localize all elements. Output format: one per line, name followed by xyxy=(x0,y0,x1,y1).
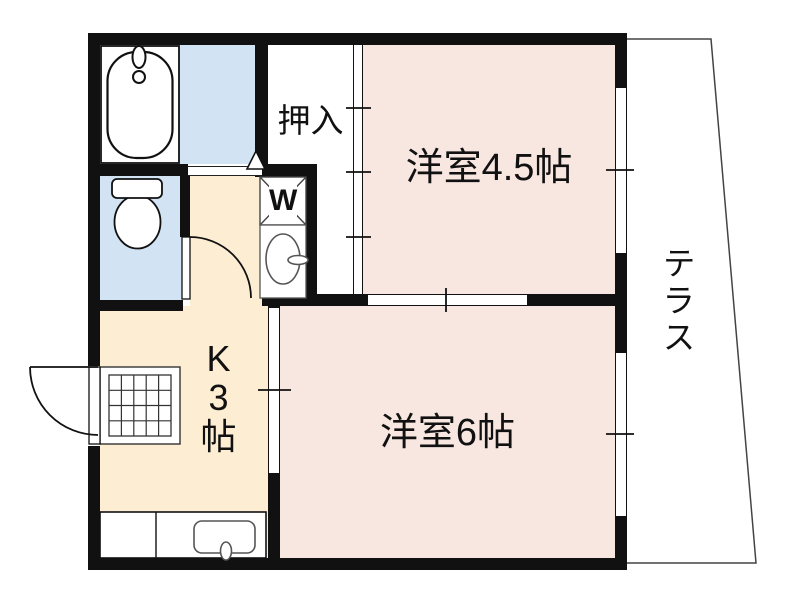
floor-plan: 洋室4.5帖 洋室6帖 押入 K 3 帖 テラス W xyxy=(0,0,800,612)
wall-top xyxy=(88,33,627,45)
kitchen-label-line2: 3 xyxy=(196,378,241,417)
closet-sliding-door xyxy=(353,45,363,294)
kitchen-label-line1: K xyxy=(196,339,241,378)
room-6-window xyxy=(615,353,627,516)
washing-machine-label: W xyxy=(269,184,297,218)
wall-room-divider-right xyxy=(527,294,627,306)
washbasin-icon xyxy=(260,225,308,298)
entrance-opening xyxy=(88,366,100,446)
wall-washer-right xyxy=(306,168,317,306)
kitchen-floor-upper xyxy=(190,176,262,306)
wall-kitchen-room6-bottom xyxy=(268,473,280,570)
room-6-label: 洋室6帖 xyxy=(280,413,615,453)
wall-toilet-bottom xyxy=(88,300,183,311)
closet-label: 押入 xyxy=(263,103,358,139)
wall-bottom xyxy=(88,558,627,570)
room-45-label: 洋室4.5帖 xyxy=(363,148,615,188)
kitchen-label-line3: 帖 xyxy=(196,417,241,456)
wall-under-washroom xyxy=(91,164,188,176)
wall-kitchen-room6-top-stub xyxy=(268,294,280,308)
bathtub-icon xyxy=(101,46,179,163)
washroom-sliding-door xyxy=(188,166,262,176)
terrace-label: テラス xyxy=(652,246,700,376)
kitchen-label: K 3 帖 xyxy=(196,339,241,456)
room-45-window xyxy=(615,88,627,253)
washroom-floor xyxy=(179,45,255,164)
room45-room6-sliding-door xyxy=(368,294,527,306)
kitchen-floor-main xyxy=(100,306,268,558)
kitchen-room6-sliding-door xyxy=(268,308,280,473)
toilet-room-floor xyxy=(100,175,182,300)
wall-toilet-right xyxy=(180,170,190,237)
